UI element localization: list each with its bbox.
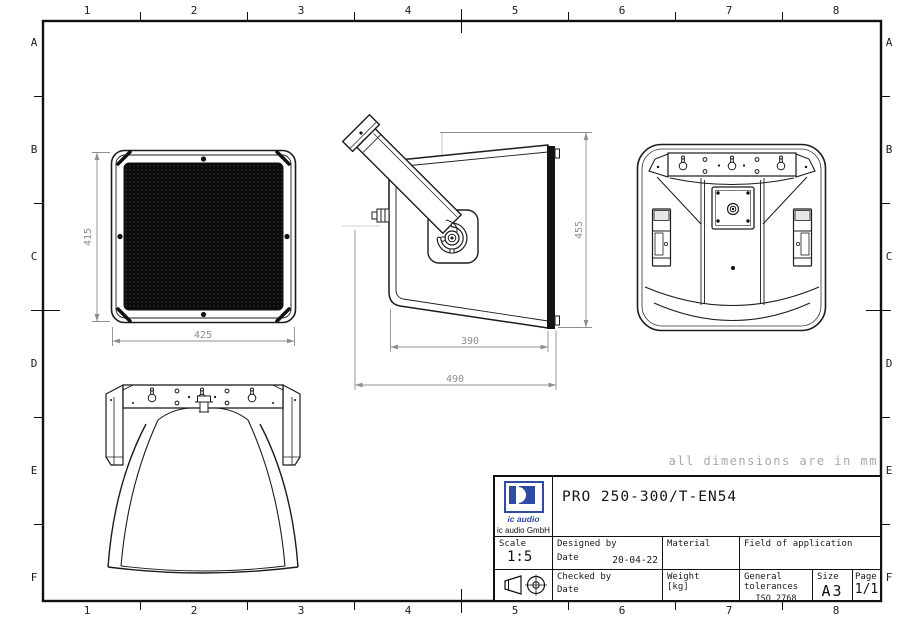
scale-value: 1:5 — [495, 549, 552, 565]
grid-row-label: C — [881, 250, 897, 264]
grid-col-label: 1 — [77, 4, 97, 18]
bottom-view — [106, 385, 300, 573]
front-edge-band — [547, 146, 555, 329]
grid-row-label: C — [26, 250, 42, 264]
page-label: Page — [853, 570, 880, 582]
product-cell: PRO 250-300/T-EN54 — [553, 477, 880, 537]
grid-col-label: 7 — [719, 4, 739, 18]
grid-col-label: 4 — [398, 4, 418, 18]
grid-row-label: A — [26, 36, 42, 50]
grid-row-label: E — [881, 464, 897, 478]
field-cell: Field of application — [740, 537, 880, 570]
grid-col-label: 4 — [398, 604, 418, 618]
mounting-bar-rear — [649, 153, 815, 177]
size-cell: Size A3 — [813, 570, 853, 600]
designed-date: 20-04-22 — [612, 555, 658, 566]
material-label: Material — [663, 537, 739, 549]
projection-symbol-cell — [495, 570, 553, 600]
size-label: Size — [813, 570, 852, 582]
drawing-sheet: 415 425 390 490 455 1 2 3 4 5 6 7 8 1 2 … — [0, 0, 900, 636]
product-title: PRO 250-300/T-EN54 — [562, 489, 737, 505]
grid-row-label: D — [26, 357, 42, 371]
page-value: 1/1 — [853, 582, 880, 597]
scale-label: Scale — [495, 537, 552, 549]
weight-unit: [kg] — [663, 582, 739, 592]
dimension-label-front-height: 415 — [83, 228, 94, 246]
general-tolerances-label: General tolerances — [740, 570, 812, 592]
checked-cell: Checked by Date — [553, 570, 663, 600]
scale-cell: Scale 1:5 — [495, 537, 553, 570]
grid-row-label: F — [26, 571, 42, 585]
first-angle-projection-icon — [498, 572, 550, 598]
grid-col-label: 3 — [291, 4, 311, 18]
grid-col-label: 6 — [612, 4, 632, 18]
logo-cell: ic audio ic audio GmbH — [495, 477, 553, 537]
units-note: all dimensions are in mm — [580, 454, 878, 468]
grid-row-label: B — [26, 143, 42, 157]
dimension-label-front-width: 425 — [194, 330, 212, 341]
grid-row-label: B — [881, 143, 897, 157]
checked-date-label: Date — [553, 582, 662, 595]
title-block: ic audio ic audio GmbH PRO 250-300/T-EN5… — [493, 475, 882, 602]
horn-bell — [108, 408, 298, 573]
rear-mount-plate — [712, 187, 754, 229]
rear-view — [638, 145, 826, 331]
grid-row-label: D — [881, 357, 897, 371]
grid-row-label: E — [26, 464, 42, 478]
field-of-application-label: Field of application — [740, 537, 880, 549]
grid-col-label: 6 — [612, 604, 632, 618]
grid-col-label: 5 — [505, 604, 525, 618]
speaker-grille — [124, 163, 283, 310]
company-logo-icon — [504, 481, 544, 513]
designed-cell: Designed by Date 20-04-22 — [553, 537, 663, 570]
company-name: ic audio GmbH — [495, 526, 552, 535]
size-value: A3 — [813, 582, 852, 600]
grid-col-label: 3 — [291, 604, 311, 618]
grid-col-label: 1 — [77, 604, 97, 618]
cable-gland — [372, 209, 389, 222]
tolerances-value: ISO 2768 mittel — [740, 592, 812, 600]
checked-by-label: Checked by — [553, 570, 662, 582]
front-view — [112, 151, 296, 323]
mounting-bar-bottom — [123, 385, 283, 412]
dimension-label-side-depth: 390 — [461, 336, 479, 347]
tolerances-cell: General tolerances ISO 2768 mittel — [740, 570, 813, 600]
grid-row-label: A — [881, 36, 897, 50]
material-cell: Material — [663, 537, 740, 570]
side-view — [342, 115, 560, 329]
dimension-label-side-total-depth: 490 — [446, 374, 464, 385]
designed-by-label: Designed by — [553, 537, 662, 549]
grid-col-label: 2 — [184, 4, 204, 18]
grid-col-label: 8 — [826, 4, 846, 18]
grid-row-label: F — [881, 571, 897, 585]
grid-col-label: 7 — [719, 604, 739, 618]
grid-col-label: 5 — [505, 4, 525, 18]
page-cell: Page 1/1 — [853, 570, 880, 600]
logo-text: ic audio — [495, 514, 552, 524]
grid-col-label: 8 — [826, 604, 846, 618]
dimension-label-side-height: 455 — [574, 221, 585, 239]
weight-label: Weight — [663, 570, 739, 582]
weight-cell: Weight [kg] — [663, 570, 740, 600]
grid-col-label: 2 — [184, 604, 204, 618]
